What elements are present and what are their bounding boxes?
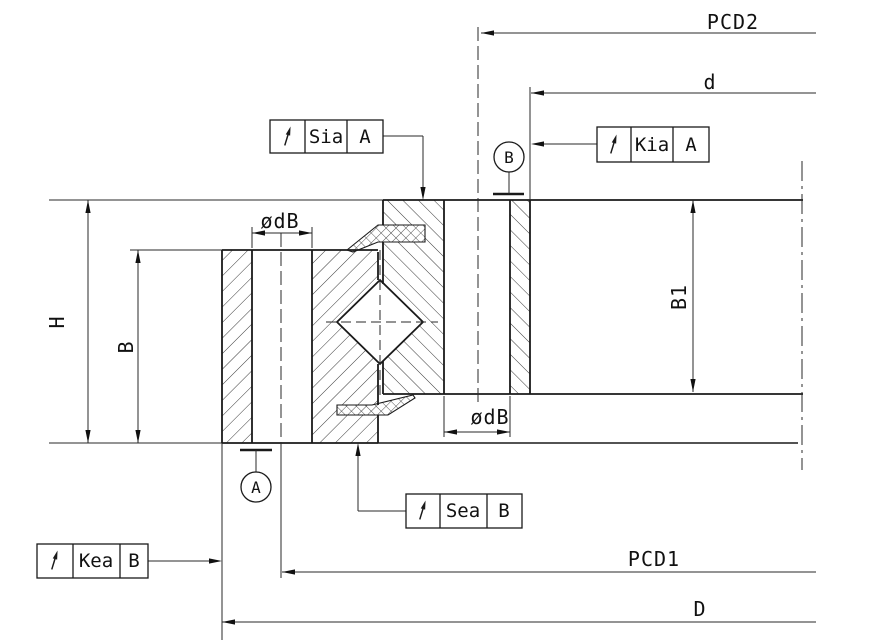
dim-label-pcd2: PCD2 xyxy=(707,10,759,34)
dim-label-bolt-hole-inner: ødB xyxy=(260,209,299,233)
dim-label-height: H xyxy=(45,315,69,328)
bearing-cross-section-drawing: PCD2 d PCD1 D H xyxy=(0,0,869,641)
frame-label-sia: Sia xyxy=(309,126,343,148)
frame-datum-sea: B xyxy=(498,500,509,522)
inner-ring-hatch-left xyxy=(222,250,252,443)
dim-label-outer-ring-height: B1 xyxy=(667,284,691,310)
dim-label-pcd1: PCD1 xyxy=(628,547,680,571)
technical-drawing-page: PCD2 d PCD1 D H xyxy=(0,0,869,641)
frame-label-kea: Kea xyxy=(79,550,113,572)
dim-label-outer-diameter: D xyxy=(693,597,706,621)
frame-datum-sia: A xyxy=(359,126,371,148)
frame-datum-kea: B xyxy=(128,550,139,572)
datum-label-b: B xyxy=(504,148,514,167)
frame-label-sea: Sea xyxy=(446,500,480,522)
dim-label-d: d xyxy=(703,70,716,94)
dim-label-bolt-hole-outer: ødB xyxy=(470,405,509,429)
frame-datum-kia: A xyxy=(685,134,697,156)
frame-label-kia: Kia xyxy=(635,134,669,156)
dim-label-inner-ring-height: B xyxy=(114,340,138,353)
datum-label-a: A xyxy=(251,478,261,497)
outer-ring-hatch-right xyxy=(510,200,530,394)
